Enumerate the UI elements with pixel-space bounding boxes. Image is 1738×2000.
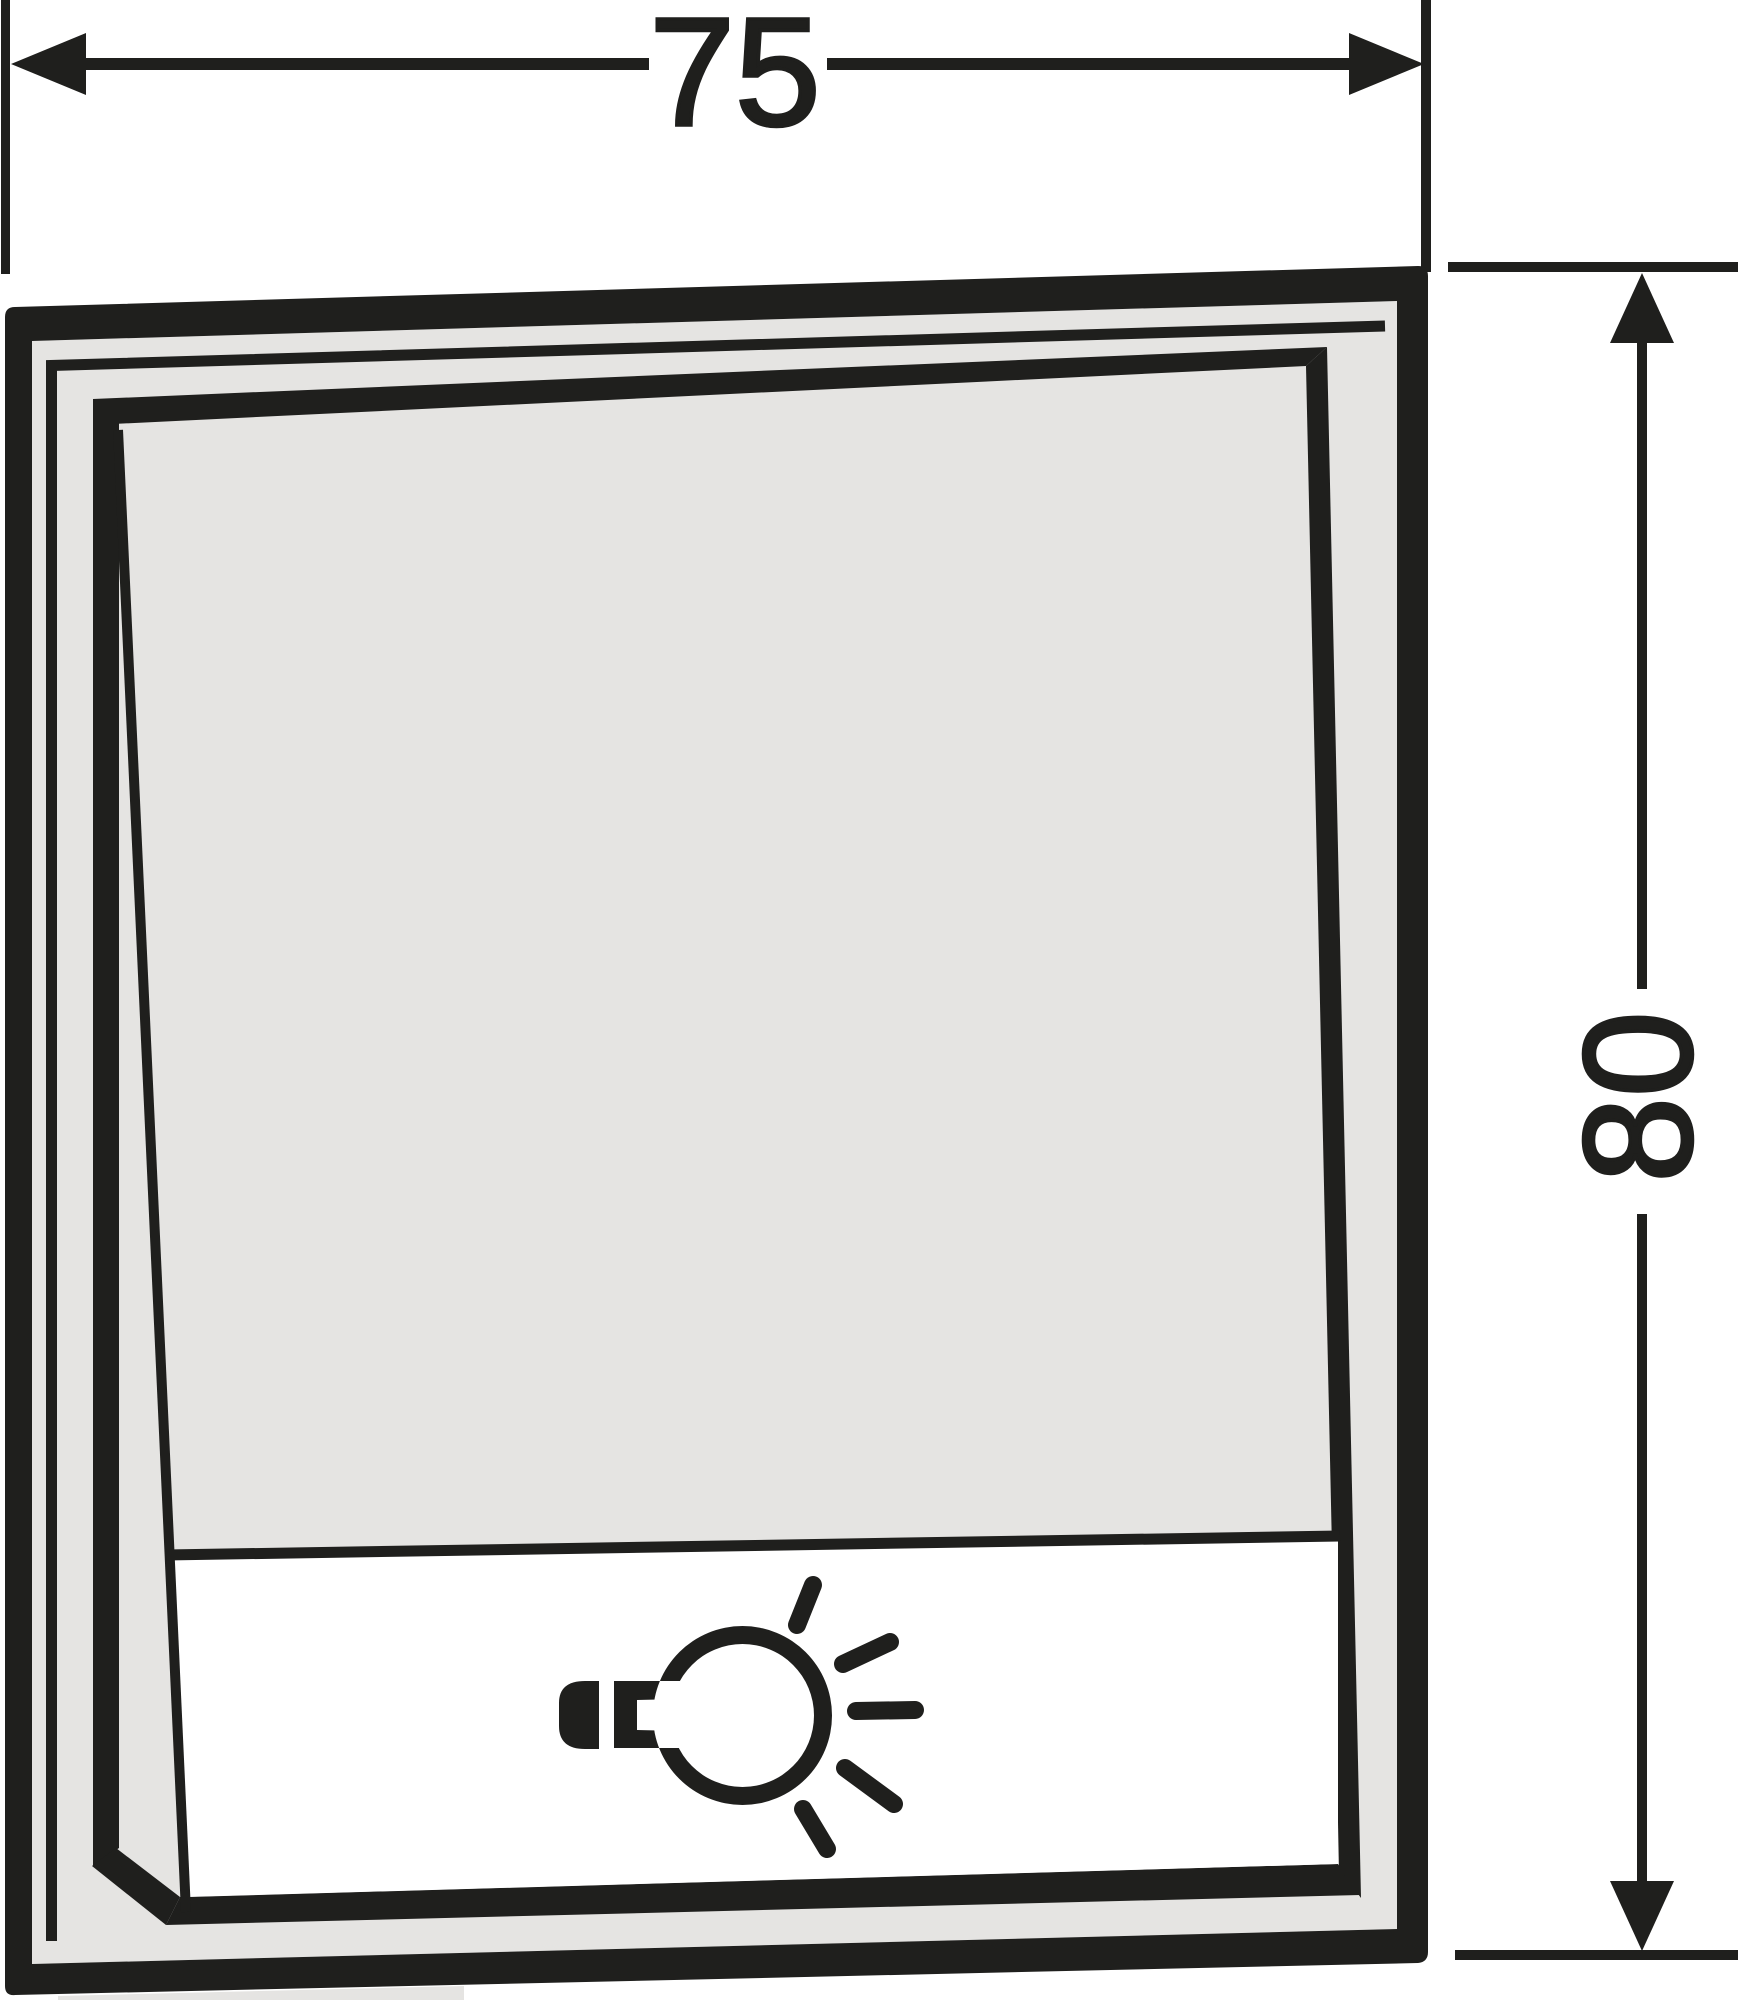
svg-text:75: 75 — [649, 0, 820, 158]
svg-text:80: 80 — [1552, 1011, 1724, 1182]
